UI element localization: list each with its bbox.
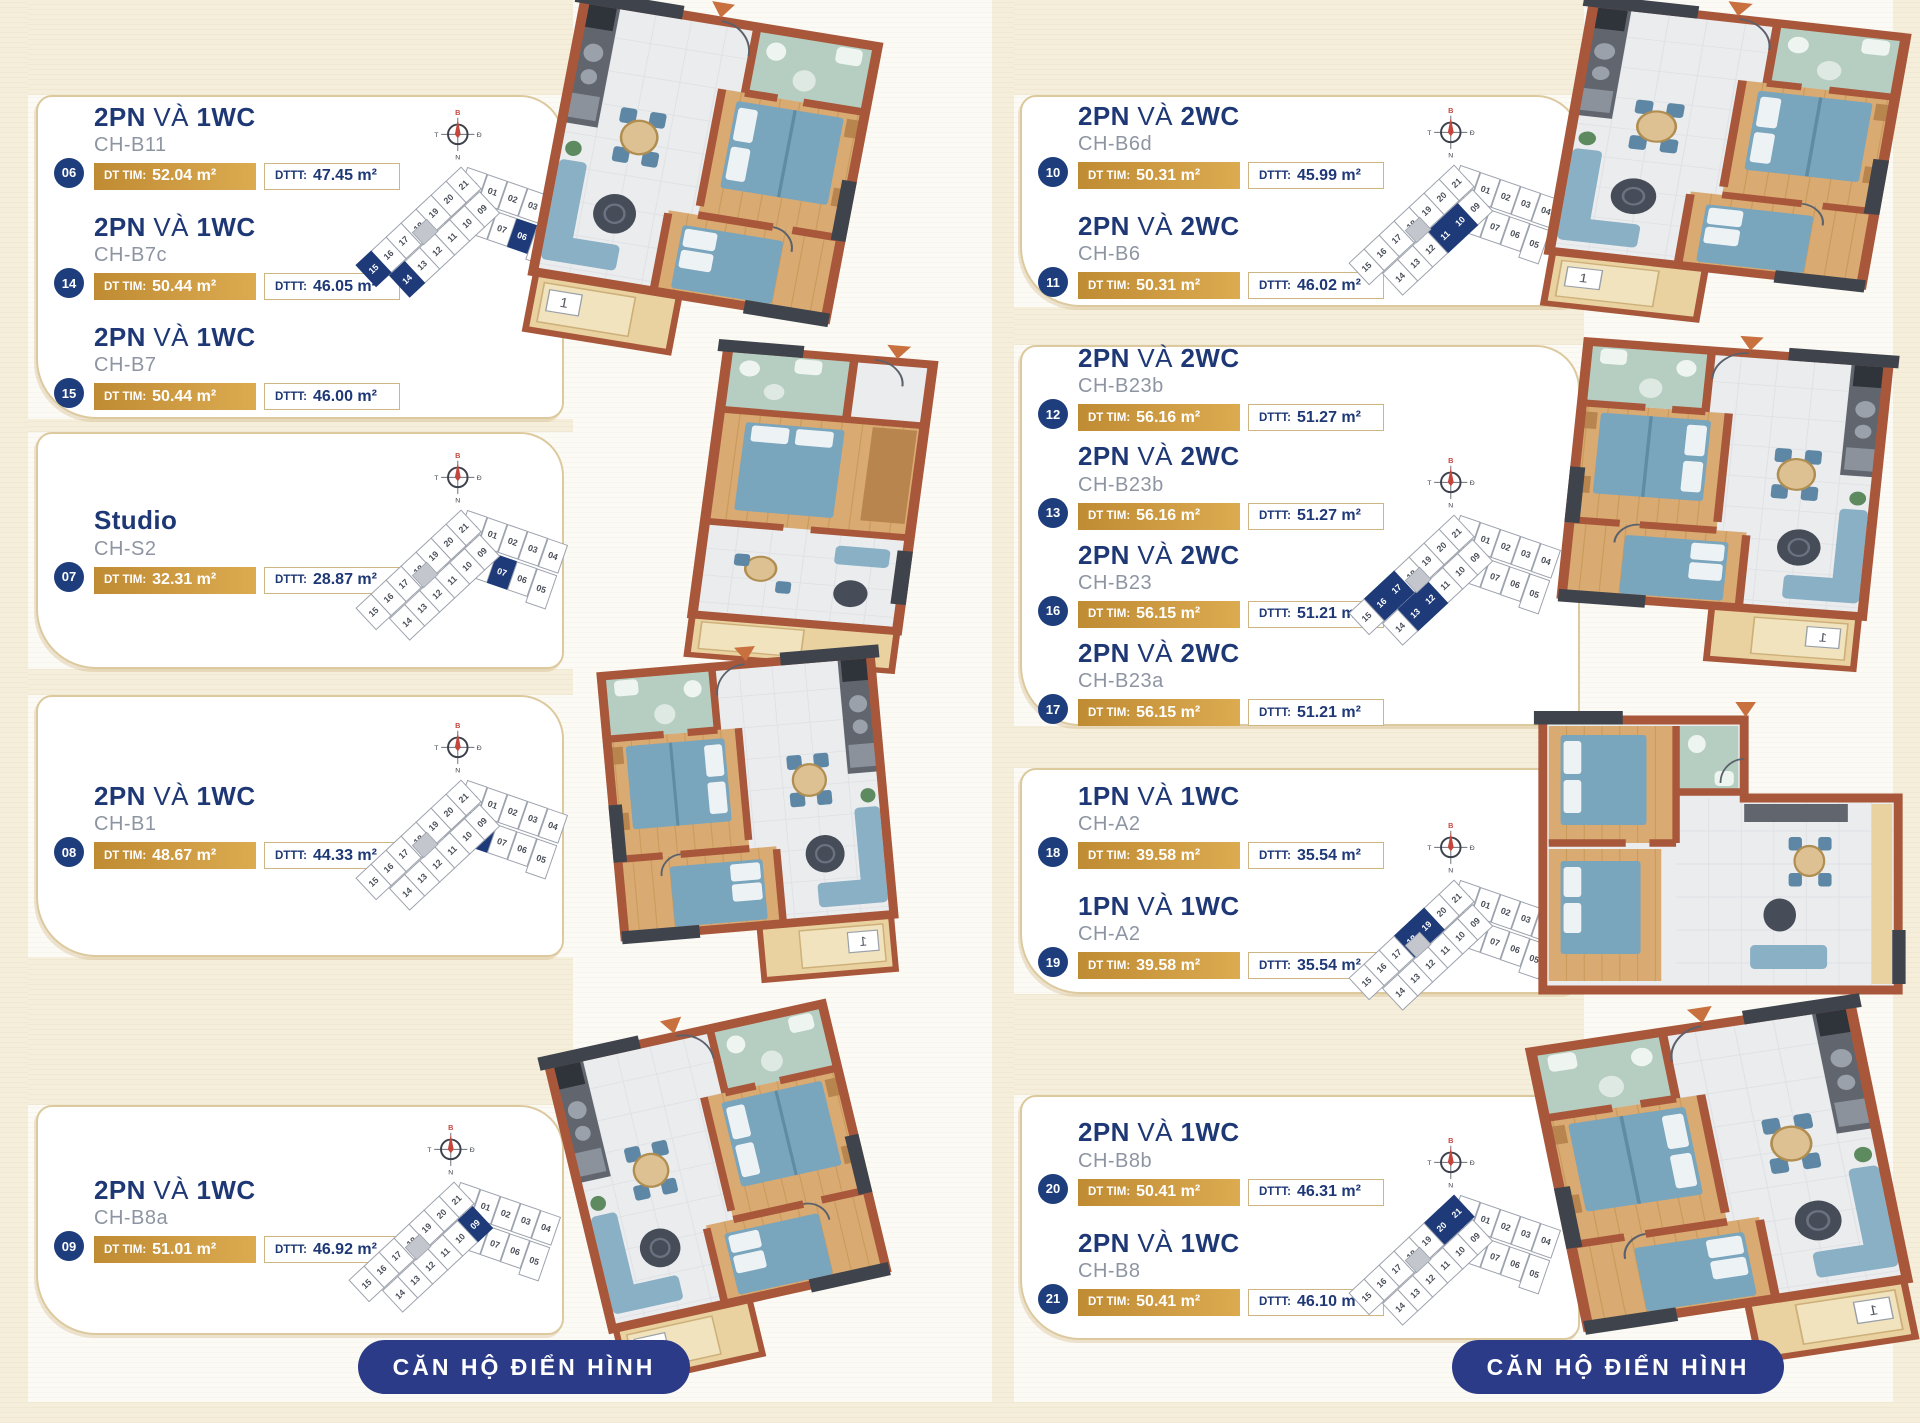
svg-text:B: B (448, 1123, 453, 1132)
compass-icon: B Đ N T (1427, 456, 1475, 510)
dt-tim-value: 39.58 m² (1136, 957, 1200, 975)
keyplan-diagram: B Đ N T220102030408070605212019181716150… (352, 450, 587, 665)
unit-number-badge: 19 (1038, 947, 1068, 977)
unit-area-chips: DT TIM: 56.16 m² DTTT: 51.27 m² (1078, 503, 1384, 530)
unit-code: CH-B23b (1078, 375, 1384, 398)
svg-text:B: B (1448, 456, 1453, 465)
unit-entry-body: 2PN VÀ 1WC CH-B7 DT TIM: 50.44 m² DTTT: … (94, 324, 400, 410)
unit-type-wc: 2WC (1181, 211, 1240, 241)
background-strip (28, 0, 573, 95)
unit-type-wc: 1WC (1181, 891, 1240, 921)
unit-code: CH-A2 (1078, 813, 1384, 836)
unit-type-bed: 2PN (1078, 101, 1130, 131)
dt-tim-value: 56.16 m² (1136, 409, 1200, 427)
unit-entry: 15 2PN VÀ 1WC CH-B7 DT TIM: 50.44 m² DTT… (54, 324, 364, 410)
compass-icon: B Đ N T (434, 108, 482, 162)
dt-tim-label: DT TIM: (104, 391, 146, 403)
unit-type-bed: 2PN (1078, 1117, 1130, 1147)
unit-type-bed: 2PN (1078, 638, 1130, 668)
compass-icon: B Đ N T (1427, 1136, 1475, 1190)
dt-tim-chip: DT TIM: 50.41 m² (1078, 1289, 1240, 1316)
dt-tim-label: DT TIM: (1088, 608, 1130, 620)
unit-type-join: VÀ (1137, 1228, 1172, 1258)
dt-tim-chip: DT TIM: 56.16 m² (1078, 503, 1240, 530)
unit-type-wc: 2WC (1181, 343, 1240, 373)
unit-type-wc: 1WC (197, 102, 256, 132)
unit-type-join: VÀ (1137, 638, 1172, 668)
unit-number-badge: 11 (1038, 267, 1068, 297)
dttt-label: DTTT: (1259, 280, 1291, 292)
unit-entry-body: 2PN VÀ 2WC CH-B23 DT TIM: 56.15 m² DTTT:… (1078, 542, 1384, 628)
dt-tim-label: DT TIM: (1088, 510, 1130, 522)
dt-tim-chip: DT TIM: 39.58 m² (1078, 952, 1240, 979)
unit-type-wc: 2WC (1181, 441, 1240, 471)
unit-type-bed: 2PN (1078, 540, 1130, 570)
typical-apartment-button[interactable]: CĂN HỘ ĐIỂN HÌNH (1452, 1340, 1784, 1394)
dt-tim-chip: DT TIM: 48.67 m² (94, 842, 256, 869)
unit-type-bed: 2PN (94, 1175, 146, 1205)
unit-code: CH-B7 (94, 354, 400, 377)
dttt-label: DTTT: (275, 170, 307, 182)
unit-type-wc: 1WC (1181, 1117, 1240, 1147)
background-strip (0, 0, 28, 1423)
dt-tim-label: DT TIM: (1088, 1296, 1130, 1308)
dttt-label: DTTT: (1259, 1296, 1291, 1308)
svg-text:Đ: Đ (470, 1147, 475, 1154)
svg-text:1: 1 (1818, 630, 1828, 645)
floorplan-image: 1 (568, 1015, 880, 1373)
dt-tim-chip: DT TIM: 56.15 m² (1078, 699, 1240, 726)
svg-text:N: N (1448, 868, 1453, 875)
unit-entry: 21 2PN VÀ 1WC CH-B8 DT TIM: 50.41 m² DTT… (1038, 1230, 1348, 1316)
svg-text:T: T (434, 475, 439, 482)
background-strip (28, 957, 573, 1105)
dt-tim-value: 56.16 m² (1136, 507, 1200, 525)
keyplan-diagram: B Đ N T220102030408070605212019181716150… (1345, 455, 1580, 670)
unit-type-title: 2PN VÀ 2WC (1078, 640, 1384, 667)
dttt-label: DTTT: (275, 574, 307, 586)
unit-number-badge: 06 (54, 158, 84, 188)
unit-area-chips: DT TIM: 39.58 m² DTTT: 35.54 m² (1078, 952, 1384, 979)
unit-type-bed: 2PN (94, 212, 146, 242)
unit-number-badge: 10 (1038, 157, 1068, 187)
background-strip (1014, 726, 1584, 768)
dt-tim-value: 50.44 m² (152, 278, 216, 296)
dt-tim-chip: DT TIM: 50.44 m² (94, 383, 256, 410)
dttt-label: DTTT: (1259, 1186, 1291, 1198)
dt-tim-label: DT TIM: (1088, 1186, 1130, 1198)
dt-tim-label: DT TIM: (1088, 412, 1130, 424)
unit-type-title: 2PN VÀ 1WC (94, 324, 400, 351)
unit-type-title: 2PN VÀ 2WC (1078, 103, 1384, 130)
unit-type-wc: 2WC (1181, 638, 1240, 668)
dt-tim-label: DT TIM: (104, 850, 146, 862)
unit-type-join: VÀ (153, 1175, 188, 1205)
dttt-label: DTTT: (1259, 850, 1291, 862)
svg-text:T: T (1427, 845, 1432, 852)
dttt-label: DTTT: (275, 1244, 307, 1256)
dttt-chip: DTTT: 46.00 m² (264, 383, 400, 410)
unit-entry: 18 1PN VÀ 1WC CH-A2 DT TIM: 39.58 m² DTT… (1038, 783, 1348, 869)
dt-tim-chip: DT TIM: 50.41 m² (1078, 1179, 1240, 1206)
unit-number-badge: 21 (1038, 1284, 1068, 1314)
unit-entry-body: 2PN VÀ 2WC CH-B23a DT TIM: 56.15 m² DTTT… (1078, 640, 1384, 726)
unit-type-join: VÀ (1137, 891, 1172, 921)
unit-type-title: 1PN VÀ 1WC (1078, 893, 1384, 920)
dt-tim-chip: DT TIM: 50.44 m² (94, 273, 256, 300)
floorplan-image (1528, 705, 1913, 1005)
compass-icon: B Đ N T (434, 451, 482, 505)
unit-type-bed: 2PN (1078, 211, 1130, 241)
svg-text:B: B (1448, 106, 1453, 115)
dt-tim-value: 50.31 m² (1136, 277, 1200, 295)
svg-text:N: N (1448, 153, 1453, 160)
dttt-label: DTTT: (275, 391, 307, 403)
svg-text:N: N (455, 155, 460, 162)
unit-type-title: 2PN VÀ 1WC (1078, 1230, 1384, 1257)
dttt-label: DTTT: (275, 850, 307, 862)
unit-type-bed: 2PN (94, 322, 146, 352)
svg-text:Đ: Đ (477, 475, 482, 482)
unit-code: CH-A2 (1078, 923, 1384, 946)
dttt-value: 51.21 m² (1297, 704, 1361, 722)
unit-entry-list: 20 2PN VÀ 1WC CH-B8b DT TIM: 50.41 m² DT… (1038, 1097, 1348, 1338)
unit-type-bed: 2PN (94, 781, 146, 811)
unit-code: CH-B6d (1078, 133, 1384, 156)
svg-text:T: T (434, 745, 439, 752)
dttt-value: 51.27 m² (1297, 409, 1361, 427)
unit-type-join: VÀ (1137, 211, 1172, 241)
dt-tim-chip: DT TIM: 39.58 m² (1078, 842, 1240, 869)
dt-tim-label: DT TIM: (104, 170, 146, 182)
svg-text:N: N (1448, 1183, 1453, 1190)
unit-area-chips: DT TIM: 50.31 m² DTTT: 45.99 m² (1078, 162, 1384, 189)
unit-entry-list: 06 2PN VÀ 1WC CH-B11 DT TIM: 52.04 m² DT… (54, 97, 364, 417)
unit-number-badge: 09 (54, 1231, 84, 1261)
dttt-label: DTTT: (275, 281, 307, 293)
unit-type-join: VÀ (153, 322, 188, 352)
dt-tim-chip: DT TIM: 50.31 m² (1078, 272, 1240, 299)
unit-area-chips: DT TIM: 56.15 m² DTTT: 51.21 m² (1078, 601, 1384, 628)
background-strip (1014, 0, 1584, 95)
unit-entry: 11 2PN VÀ 2WC CH-B6 DT TIM: 50.31 m² DTT… (1038, 213, 1348, 299)
unit-number-badge: 13 (1038, 498, 1068, 528)
unit-type-title: 2PN VÀ 2WC (1078, 213, 1384, 240)
unit-type-wc: 1WC (197, 1175, 256, 1205)
unit-number-badge: 14 (54, 268, 84, 298)
unit-entry: 19 1PN VÀ 1WC CH-A2 DT TIM: 39.58 m² DTT… (1038, 893, 1348, 979)
dttt-label: DTTT: (1259, 412, 1291, 424)
unit-entry-list: 12 2PN VÀ 2WC CH-B23b DT TIM: 56.16 m² D… (1038, 347, 1348, 724)
dt-tim-value: 50.31 m² (1136, 167, 1200, 185)
unit-entry-body: 1PN VÀ 1WC CH-A2 DT TIM: 39.58 m² DTTT: … (1078, 893, 1384, 979)
unit-type-join: VÀ (1137, 343, 1172, 373)
unit-type-bed: 2PN (1078, 343, 1130, 373)
svg-text:T: T (1427, 130, 1432, 137)
unit-entry: 10 2PN VÀ 2WC CH-B6d DT TIM: 50.31 m² DT… (1038, 103, 1348, 189)
unit-type-title: 2PN VÀ 1WC (1078, 1119, 1384, 1146)
floorplan-image: 1 (1548, 5, 1898, 335)
unit-type-wc: 1WC (197, 212, 256, 242)
unit-type-join: VÀ (153, 102, 188, 132)
dt-tim-label: DT TIM: (1088, 707, 1130, 719)
unit-code: CH-B23b (1078, 474, 1384, 497)
unit-entry: 13 2PN VÀ 2WC CH-B23b DT TIM: 56.16 m² D… (1038, 443, 1348, 529)
unit-entry: 16 2PN VÀ 2WC CH-B23 DT TIM: 56.15 m² DT… (1038, 542, 1348, 628)
unit-type-join: VÀ (1137, 441, 1172, 471)
unit-area-chips: DT TIM: 50.31 m² DTTT: 46.02 m² (1078, 272, 1384, 299)
unit-type-wc: 1WC (1181, 781, 1240, 811)
unit-entry-list: 10 2PN VÀ 2WC CH-B6d DT TIM: 50.31 m² DT… (1038, 97, 1348, 305)
svg-text:T: T (434, 132, 439, 139)
svg-text:N: N (1448, 503, 1453, 510)
svg-text:Đ: Đ (1470, 1160, 1475, 1167)
svg-text:B: B (455, 721, 460, 730)
unit-code: CH-B6 (1078, 243, 1384, 266)
unit-type-join: VÀ (153, 212, 188, 242)
keyplan-diagram: B Đ N T220102030408070605212019181716150… (345, 1122, 580, 1337)
unit-type-bed: 2PN (1078, 1228, 1130, 1258)
unit-number-badge: 18 (1038, 837, 1068, 867)
unit-type-join: VÀ (153, 781, 188, 811)
unit-type-wc: 1WC (197, 322, 256, 352)
compass-icon: B Đ N T (1427, 106, 1475, 160)
unit-type-wc: 1WC (1181, 1228, 1240, 1258)
background-strip (28, 419, 573, 432)
dttt-label: DTTT: (1259, 170, 1291, 182)
unit-entry: 09 2PN VÀ 1WC CH-B8a DT TIM: 51.01 m² DT… (54, 1177, 364, 1263)
unit-number-badge: 07 (54, 562, 84, 592)
unit-area-chips: DT TIM: 50.41 m² DTTT: 46.31 m² (1078, 1179, 1384, 1206)
unit-number-badge: 16 (1038, 596, 1068, 626)
unit-entry: 14 2PN VÀ 1WC CH-B7c DT TIM: 50.44 m² DT… (54, 214, 364, 300)
unit-number-badge: 17 (1038, 694, 1068, 724)
dttt-label: DTTT: (1259, 510, 1291, 522)
unit-type-title: 1PN VÀ 1WC (1078, 783, 1384, 810)
unit-type-join: VÀ (1137, 1117, 1172, 1147)
unit-entry: 20 2PN VÀ 1WC CH-B8b DT TIM: 50.41 m² DT… (1038, 1119, 1348, 1205)
unit-type-bed: 1PN (1078, 781, 1130, 811)
unit-type-bed: Studio (94, 505, 177, 535)
unit-entry: 17 2PN VÀ 2WC CH-B23a DT TIM: 56.15 m² D… (1038, 640, 1348, 726)
dt-tim-value: 52.04 m² (152, 167, 216, 185)
unit-entry-body: 2PN VÀ 2WC CH-B23b DT TIM: 56.16 m² DTTT… (1078, 443, 1384, 529)
dt-tim-value: 56.15 m² (1136, 704, 1200, 722)
svg-text:B: B (455, 451, 460, 460)
unit-entry-body: 2PN VÀ 1WC CH-B8 DT TIM: 50.41 m² DTTT: … (1078, 1230, 1384, 1316)
unit-area-chips: DT TIM: 50.41 m² DTTT: 46.10 m² (1078, 1289, 1384, 1316)
dttt-value: 46.00 m² (313, 388, 377, 406)
svg-text:Đ: Đ (1470, 480, 1475, 487)
svg-text:Đ: Đ (477, 132, 482, 139)
unit-entry-body: 2PN VÀ 2WC CH-B6d DT TIM: 50.31 m² DTTT:… (1078, 103, 1384, 189)
dt-tim-value: 48.67 m² (152, 847, 216, 865)
unit-area-chips: DT TIM: 56.15 m² DTTT: 51.21 m² (1078, 699, 1384, 726)
unit-code: CH-B23a (1078, 670, 1384, 693)
dt-tim-value: 51.01 m² (152, 1241, 216, 1259)
unit-type-wc: 1WC (197, 781, 256, 811)
dttt-chip: DTTT: 51.21 m² (1248, 699, 1384, 726)
compass-icon: B Đ N T (1427, 821, 1475, 875)
svg-text:T: T (1427, 1160, 1432, 1167)
svg-text:B: B (455, 108, 460, 117)
dttt-label: DTTT: (1259, 608, 1291, 620)
unit-code: CH-B8 (1078, 1260, 1384, 1283)
unit-area-chips: DT TIM: 56.16 m² DTTT: 51.27 m² (1078, 404, 1384, 431)
dt-tim-label: DT TIM: (104, 574, 146, 586)
svg-text:B: B (1448, 1136, 1453, 1145)
unit-type-join: VÀ (1137, 781, 1172, 811)
svg-text:Đ: Đ (1470, 130, 1475, 137)
svg-text:B: B (1448, 821, 1453, 830)
unit-area-chips: DT TIM: 50.44 m² DTTT: 46.00 m² (94, 383, 400, 410)
floorplan-image: 1 (600, 650, 900, 995)
dt-tim-label: DT TIM: (1088, 960, 1130, 972)
compass-icon: B Đ N T (434, 721, 482, 775)
unit-entry-list: 09 2PN VÀ 1WC CH-B8a DT TIM: 51.01 m² DT… (54, 1107, 364, 1333)
dt-tim-value: 56.15 m² (1136, 605, 1200, 623)
svg-text:T: T (1427, 480, 1432, 487)
dt-tim-label: DT TIM: (1088, 280, 1130, 292)
unit-type-title: 2PN VÀ 2WC (1078, 542, 1384, 569)
svg-text:N: N (455, 768, 460, 775)
unit-entry-body: 1PN VÀ 1WC CH-A2 DT TIM: 39.58 m² DTTT: … (1078, 783, 1384, 869)
dt-tim-chip: DT TIM: 51.01 m² (94, 1236, 256, 1263)
svg-text:1: 1 (859, 934, 868, 949)
unit-number-badge: 20 (1038, 1174, 1068, 1204)
unit-type-join: VÀ (1137, 540, 1172, 570)
dt-tim-value: 39.58 m² (1136, 847, 1200, 865)
unit-type-wc: 2WC (1181, 101, 1240, 131)
keyplan-diagram: B Đ N T220102030408070605212019181716150… (352, 720, 587, 935)
dt-tim-chip: DT TIM: 50.31 m² (1078, 162, 1240, 189)
dt-tim-chip: DT TIM: 56.16 m² (1078, 404, 1240, 431)
unit-number-badge: 12 (1038, 399, 1068, 429)
unit-entry-body: 2PN VÀ 1WC CH-B8b DT TIM: 50.41 m² DTTT:… (1078, 1119, 1384, 1205)
unit-entry: 06 2PN VÀ 1WC CH-B11 DT TIM: 52.04 m² DT… (54, 104, 364, 190)
floorplan-image: 1 (535, 5, 865, 370)
unit-code: CH-B8b (1078, 1150, 1384, 1173)
dt-tim-value: 50.41 m² (1136, 1183, 1200, 1201)
dttt-chip: DTTT: 51.27 m² (1248, 404, 1384, 431)
compass-icon: B Đ N T (427, 1123, 475, 1177)
unit-entry-list: 18 1PN VÀ 1WC CH-A2 DT TIM: 39.58 m² DTT… (1038, 770, 1348, 992)
unit-type-bed: 2PN (1078, 441, 1130, 471)
background-strip (0, 1402, 1920, 1423)
floorplan-image (690, 342, 930, 677)
dt-tim-value: 50.41 m² (1136, 1293, 1200, 1311)
floorplan-image: 1 (1555, 338, 1890, 673)
unit-type-title: 2PN VÀ 2WC (1078, 345, 1384, 372)
background-strip (28, 669, 573, 695)
dt-tim-label: DT TIM: (104, 281, 146, 293)
dttt-label: DTTT: (1259, 960, 1291, 972)
unit-entry: 07 Studio CH-S2 DT TIM: 32.31 m² DTTT: 2 (54, 507, 364, 593)
svg-text:N: N (455, 498, 460, 505)
dt-tim-value: 50.44 m² (152, 388, 216, 406)
svg-text:N: N (448, 1170, 453, 1177)
unit-type-wc: 2WC (1181, 540, 1240, 570)
dt-tim-value: 32.31 m² (152, 571, 216, 589)
dt-tim-chip: DT TIM: 56.15 m² (1078, 601, 1240, 628)
svg-text:Đ: Đ (477, 745, 482, 752)
unit-type-bed: 1PN (1078, 891, 1130, 921)
svg-text:Đ: Đ (1470, 845, 1475, 852)
unit-entry-body: 2PN VÀ 2WC CH-B6 DT TIM: 50.31 m² DTTT: … (1078, 213, 1384, 299)
dt-tim-label: DT TIM: (1088, 170, 1130, 182)
background-strip (992, 0, 1014, 1423)
unit-type-join: VÀ (1137, 101, 1172, 131)
unit-number-badge: 15 (54, 378, 84, 408)
brochure-page: 06 2PN VÀ 1WC CH-B11 DT TIM: 52.04 m² DT… (0, 0, 1920, 1423)
unit-entry-list: 08 2PN VÀ 1WC CH-B1 DT TIM: 48.67 m² DTT… (54, 697, 364, 955)
dt-tim-label: DT TIM: (1088, 850, 1130, 862)
dt-tim-label: DT TIM: (104, 1244, 146, 1256)
dttt-label: DTTT: (1259, 707, 1291, 719)
typical-apartment-button[interactable]: CĂN HỘ ĐIỂN HÌNH (358, 1340, 690, 1394)
unit-entry: 12 2PN VÀ 2WC CH-B23b DT TIM: 56.16 m² D… (1038, 345, 1348, 431)
unit-area-chips: DT TIM: 39.58 m² DTTT: 35.54 m² (1078, 842, 1384, 869)
dt-tim-chip: DT TIM: 52.04 m² (94, 163, 256, 190)
svg-text:T: T (427, 1147, 432, 1154)
dt-tim-chip: DT TIM: 32.31 m² (94, 567, 256, 594)
unit-type-title: 2PN VÀ 2WC (1078, 443, 1384, 470)
unit-type-bed: 2PN (94, 102, 146, 132)
unit-number-badge: 08 (54, 837, 84, 867)
unit-entry: 08 2PN VÀ 1WC CH-B1 DT TIM: 48.67 m² DTT… (54, 783, 364, 869)
unit-entry-list: 07 Studio CH-S2 DT TIM: 32.31 m² DTTT: 2 (54, 434, 364, 667)
unit-entry-body: 2PN VÀ 2WC CH-B23b DT TIM: 56.16 m² DTTT… (1078, 345, 1384, 431)
unit-code: CH-B23 (1078, 572, 1384, 595)
floorplan-image: 1 (1545, 1010, 1905, 1378)
